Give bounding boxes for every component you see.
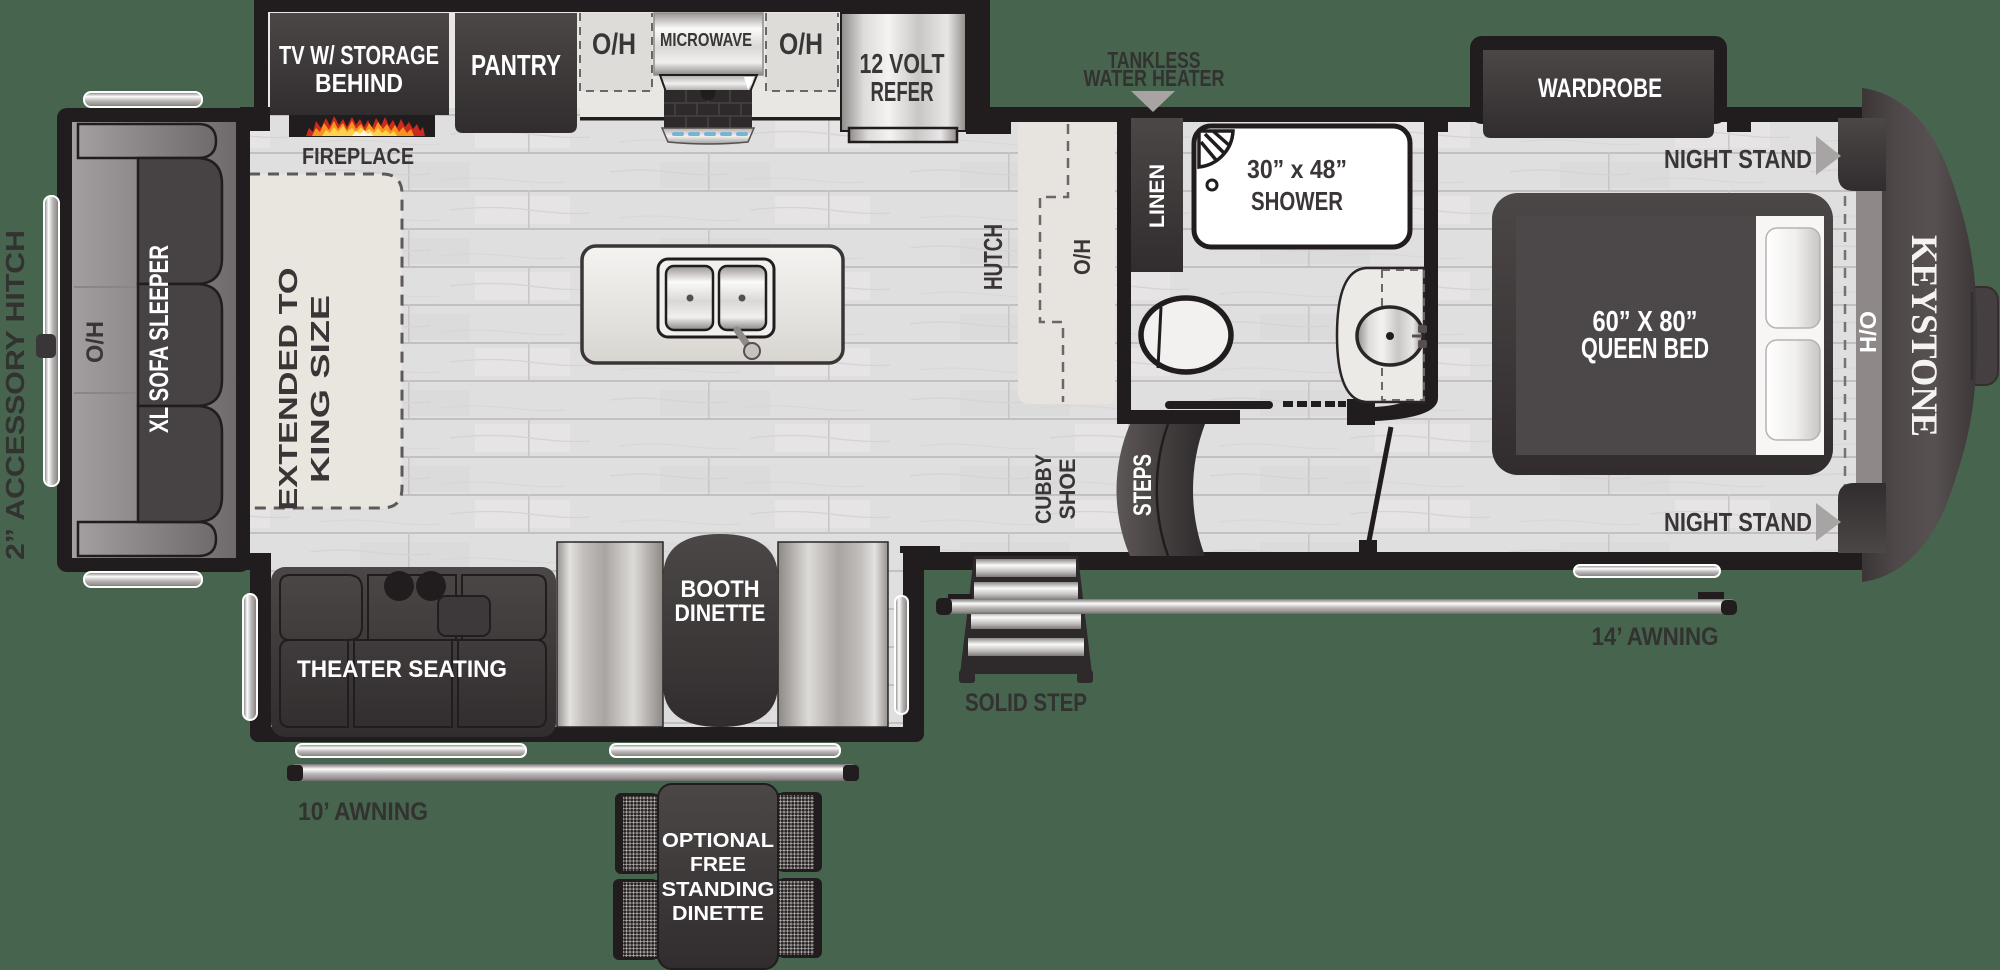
svg-text:SHOWER: SHOWER (1251, 186, 1343, 216)
svg-text:O/H: O/H (592, 28, 636, 61)
svg-text:QUEEN BED: QUEEN BED (1581, 333, 1709, 365)
svg-text:FREE: FREE (690, 854, 746, 876)
svg-text:30” x 48”: 30” x 48” (1247, 154, 1347, 184)
svg-text:10’ AWNING: 10’ AWNING (298, 798, 428, 826)
svg-text:SOLID STEP: SOLID STEP (965, 689, 1087, 717)
svg-text:REFER: REFER (871, 76, 934, 107)
svg-text:H/O: H/O (1855, 311, 1881, 353)
svg-text:KEYSTONE: KEYSTONE (1903, 235, 1944, 437)
svg-text:O/H: O/H (1069, 239, 1095, 275)
svg-text:BOOTH: BOOTH (681, 576, 760, 603)
svg-text:NIGHT STAND: NIGHT STAND (1664, 507, 1812, 537)
svg-text:BEHIND: BEHIND (315, 68, 403, 98)
svg-text:O/H: O/H (82, 321, 109, 363)
svg-text:STANDING: STANDING (662, 879, 775, 901)
svg-text:DINETTE: DINETTE (672, 903, 764, 925)
svg-text:LINEN: LINEN (1146, 164, 1169, 228)
svg-text:SHOE: SHOE (1055, 459, 1080, 520)
svg-text:2” ACCESSORY HITCH: 2” ACCESSORY HITCH (0, 230, 30, 560)
svg-text:OPTIONAL: OPTIONAL (662, 830, 774, 852)
svg-text:MICROWAVE: MICROWAVE (660, 30, 752, 50)
svg-text:PANTRY: PANTRY (471, 50, 561, 82)
svg-text:KING SIZE: KING SIZE (305, 295, 335, 483)
svg-text:THEATER SEATING: THEATER SEATING (297, 656, 507, 683)
svg-text:FIREPLACE: FIREPLACE (302, 143, 414, 169)
svg-text:XL SOFA SLEEPER: XL SOFA SLEEPER (144, 245, 174, 433)
svg-text:O/H: O/H (779, 28, 823, 61)
svg-text:EXTENDED TO: EXTENDED TO (273, 268, 303, 511)
svg-text:14’ AWNING: 14’ AWNING (1592, 623, 1719, 651)
svg-text:NIGHT STAND: NIGHT STAND (1664, 144, 1812, 174)
svg-text:12 VOLT: 12 VOLT (860, 48, 945, 79)
svg-text:STEPS: STEPS (1129, 454, 1157, 516)
svg-text:HUTCH: HUTCH (978, 224, 1008, 290)
svg-text:WATER HEATER: WATER HEATER (1084, 65, 1225, 91)
svg-text:CUBBY: CUBBY (1031, 454, 1056, 524)
svg-text:WARDROBE: WARDROBE (1538, 73, 1662, 103)
svg-text:DINETTE: DINETTE (675, 600, 766, 627)
svg-text:TV W/ STORAGE: TV W/ STORAGE (279, 40, 439, 70)
